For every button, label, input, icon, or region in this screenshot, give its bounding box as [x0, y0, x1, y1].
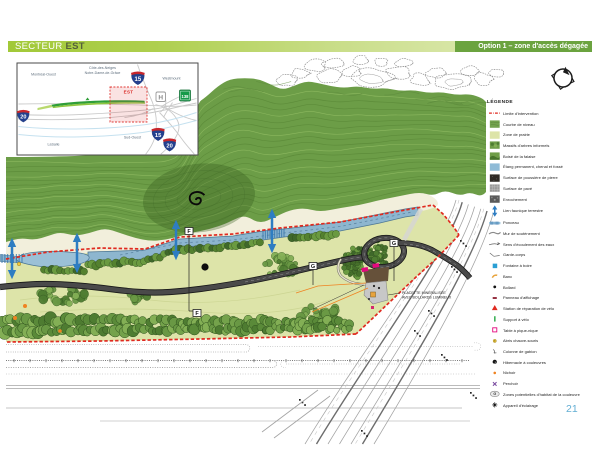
svg-text:20: 20 [20, 115, 26, 121]
svg-text:G: G [311, 264, 315, 270]
svg-text:AVEC BOLLARDS LUMINEUX: AVEC BOLLARDS LUMINEUX [402, 296, 452, 300]
svg-text:Côte-des-Neiges: Côte-des-Neiges [89, 66, 116, 70]
svg-text:Sud-Ouest: Sud-Ouest [124, 136, 141, 140]
svg-text:15: 15 [135, 77, 142, 83]
svg-text:G: G [493, 392, 496, 396]
svg-text:PLACETTE MINÉRALISÉE: PLACETTE MINÉRALISÉE [402, 290, 446, 295]
svg-text:Notre-Dame-de-Grâce: Notre-Dame-de-Grâce [85, 71, 121, 75]
svg-text:LaSalle: LaSalle [48, 143, 60, 147]
svg-text:138: 138 [182, 94, 190, 99]
svg-text:Montréal-Ouest: Montréal-Ouest [31, 73, 56, 77]
svg-text:EST: EST [124, 90, 134, 95]
svg-text:15: 15 [155, 133, 162, 139]
svg-text:20: 20 [166, 144, 172, 150]
svg-text:G: G [392, 241, 396, 247]
svg-text:Westmount: Westmount [162, 77, 180, 81]
svg-text:H: H [158, 94, 163, 101]
